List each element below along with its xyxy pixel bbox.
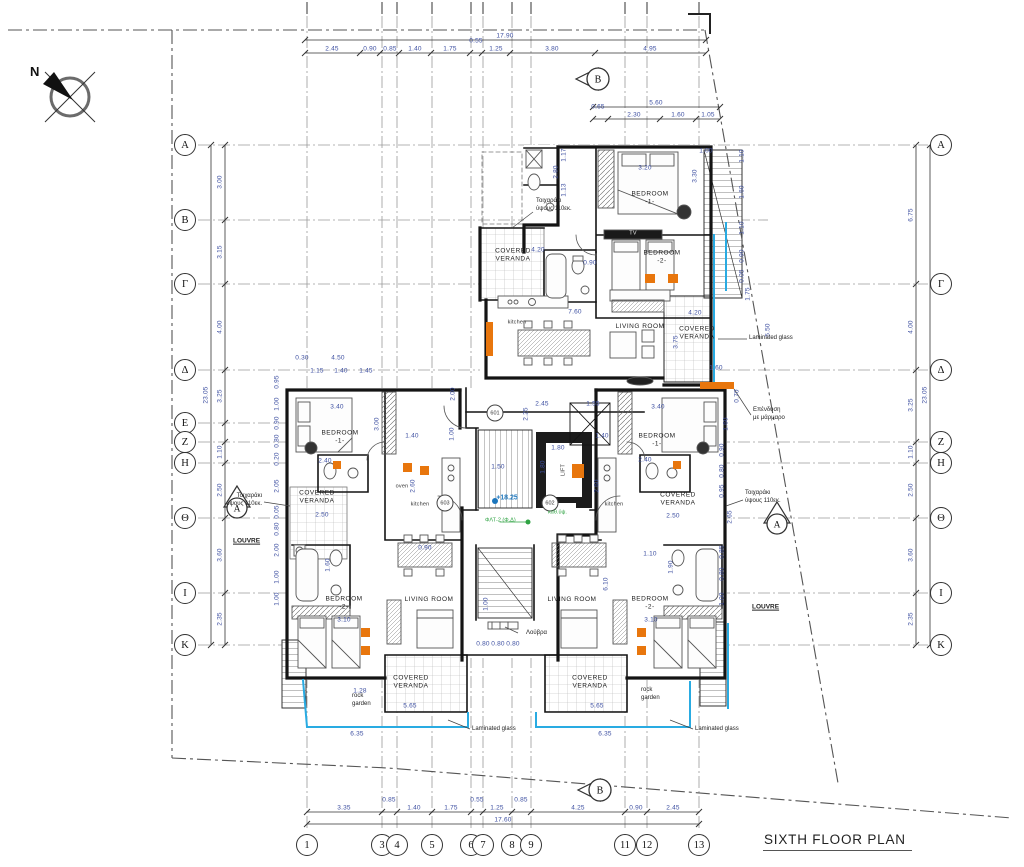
room-label-line: -1- [321, 438, 358, 446]
dim-label: 17.60 [494, 817, 511, 824]
dim-label: 1.40 [405, 433, 418, 440]
dim-label: 0.05 [274, 505, 281, 518]
room-label-line: -2- [325, 604, 362, 612]
dim-label: 0.90 [274, 416, 281, 429]
dim-label: 1.80 [540, 460, 547, 473]
dim-label: 5.60 [649, 100, 662, 107]
dim-label: 23.05 [922, 386, 929, 403]
room-label-bedroom: BEDROOM-2- [325, 596, 362, 613]
dim-label: 0.85 [719, 545, 726, 558]
dim-label: 2.50 [908, 483, 915, 496]
room-label-line: VERANDA [572, 683, 608, 691]
room-label-line: COVERED [572, 675, 608, 683]
room-label-line: BEDROOM [321, 430, 358, 438]
room-label-line: -2- [643, 258, 680, 266]
dim-label: 2.80 [553, 165, 560, 178]
dim-label: 1.10 [643, 551, 656, 558]
dim-label: 6.35 [598, 731, 611, 738]
room-label-line: COVERED [679, 326, 715, 334]
room-label-kitchen: kitchen [605, 501, 624, 508]
dim-label: 17.90 [496, 33, 513, 40]
annotation-line: LOUVRE [752, 604, 779, 613]
dim-label: 1.40 [595, 433, 608, 440]
dim-label: 3.00 [374, 417, 381, 430]
dim-label: 3.15 [217, 245, 224, 258]
room-label-line: -1- [638, 441, 675, 449]
grid-row-label-right-Δ: Δ [930, 359, 952, 381]
annotation-laminated-glass: Laminated glass [695, 725, 739, 733]
room-label-lift: LIFT [560, 464, 567, 476]
annotation-line: Τοιχαράκι [745, 489, 781, 497]
dim-label: 1.60 [709, 365, 722, 372]
dim-label: 2.50 [666, 513, 679, 520]
room-label-line: VERANDA [679, 334, 715, 342]
room-label-line: BEDROOM [643, 250, 680, 258]
dim-label: 3.40 [330, 404, 343, 411]
annotation-line: garden [352, 700, 371, 708]
room-label-line: LIFT [560, 464, 567, 476]
annotation-τοιχαρ-κι: Τοιχαράκιύψους 110εκ. [536, 197, 572, 213]
dim-label: 1.50 [491, 464, 504, 471]
dim-label: 3.60 [217, 548, 224, 561]
dim-label: 3.30 [692, 169, 699, 182]
dim-label: 2.40 [638, 457, 651, 464]
room-label-line: VERANDA [393, 683, 429, 691]
unit-tag-601: 601 [487, 405, 504, 422]
room-label-line: BEDROOM [638, 433, 675, 441]
annotation-line: LOUVRE [233, 538, 260, 547]
dim-label: 0.05 [739, 269, 746, 282]
dim-label: 2.30 [627, 112, 640, 119]
room-label-bedroom: BEDROOM-1- [638, 433, 675, 450]
grid-row-label-right-A: A [930, 134, 952, 156]
room-label-line: COVERED [495, 248, 531, 256]
svg-text:A: A [774, 521, 781, 531]
dim-label: 0.55 [469, 38, 482, 45]
dim-label: 3.10 [337, 617, 350, 624]
dim-label: 2.35 [217, 612, 224, 625]
grid-row-label-right-I: I [930, 582, 952, 604]
north-label: N [30, 64, 39, 79]
dim-label: 1.25 [489, 46, 502, 53]
dim-label: 5.65 [403, 703, 416, 710]
annotation-rock: rockgarden [641, 686, 660, 702]
dim-label: 1.60 [325, 558, 332, 571]
dim-label: 0.95 [274, 375, 281, 388]
room-label-line: LIVING ROOM [616, 323, 665, 331]
room-label-line: BEDROOM [631, 596, 668, 604]
annotation-line: Τοιχαράκι [536, 197, 572, 205]
dim-label: 1.40 [408, 46, 421, 53]
grid-row-label-left-A: A [174, 134, 196, 156]
room-label-covered: COVEREDVERANDA [572, 675, 608, 692]
grid-col-label-1: 1 [296, 834, 318, 856]
plan-title: SIXTH FLOOR PLAN [763, 832, 912, 851]
dim-label: 0.55 [470, 797, 483, 804]
grid-row-label-right-Γ: Γ [930, 273, 952, 295]
annotation-line: με μάρμαρο [753, 414, 785, 422]
dim-label: 0.90 [739, 249, 746, 262]
room-label-line: oven [396, 483, 409, 490]
annotation-line: garden [641, 694, 660, 702]
dim-label: 0.90 [363, 46, 376, 53]
dim-label: 3.00 [217, 175, 224, 188]
dim-label: 1.00 [699, 148, 712, 155]
room-label-line: COVERED [660, 492, 696, 500]
dim-label: 1.55 [586, 401, 599, 408]
dim-label: 3.25 [217, 389, 224, 402]
dim-label: 1.75 [444, 805, 457, 812]
floor-plan-canvas: B B A A AABΓΓΔΔEZZHHΘΘIIKK13456789111213… [0, 0, 1024, 867]
svg-text:B: B [595, 75, 602, 86]
dim-label: 1.10 [739, 221, 746, 234]
dim-label: 1.00 [274, 397, 281, 410]
dim-label: 0.90 [583, 260, 596, 267]
room-label-covered: COVEREDVERANDA [679, 326, 715, 343]
dim-label: 3.80 [545, 46, 558, 53]
dim-label: 1.60 [739, 185, 746, 198]
room-label-covered: COVEREDVERANDA [495, 248, 531, 265]
annotation-rock: rockgarden [352, 692, 371, 708]
dim-label: 4.50 [331, 355, 344, 362]
svg-text:B: B [597, 786, 604, 797]
grid-row-label-right-Z: Z [930, 431, 952, 453]
dim-label: 1.10 [217, 445, 224, 458]
dim-label: 0.65 [591, 104, 604, 111]
room-label-living-room: LIVING ROOM [548, 596, 597, 604]
dim-label: 1.90 [668, 560, 675, 573]
dim-label: 6.10 [603, 577, 610, 590]
dim-label: 4.95 [643, 46, 656, 53]
annotation-laminated-glass: Laminated glass [749, 334, 793, 342]
dim-label: 1.25 [490, 805, 503, 812]
dim-label: 0.80 [274, 522, 281, 535]
dim-label: 0.90 [719, 443, 726, 456]
dim-label: 2.25 [523, 407, 530, 420]
dim-label: 4.20 [688, 310, 701, 317]
dim-label: 1.75 [745, 287, 752, 300]
dim-label: 6.35 [350, 731, 363, 738]
dim-label: 1.00 [449, 427, 456, 440]
grid-col-label-13: 13 [688, 834, 710, 856]
dim-label: 4.00 [908, 320, 915, 333]
grid-row-label-right-Θ: Θ [930, 507, 952, 529]
room-label-line: VERANDA [660, 500, 696, 508]
grid-row-label-left-Γ: Γ [174, 273, 196, 295]
grid-col-label-9: 9 [520, 834, 542, 856]
room-label-tv: TV [629, 230, 636, 237]
dim-label: 2.60 [594, 479, 601, 492]
grid-row-label-left-K: K [174, 634, 196, 656]
annotation-καθ-ψ-: καθ.ύψ. [548, 509, 567, 516]
dim-label: 2.45 [666, 805, 679, 812]
dim-label: 0.80 [506, 641, 519, 648]
room-label-line: COVERED [299, 490, 335, 498]
dim-label: 1.00 [274, 592, 281, 605]
dim-label: 2.60 [410, 479, 417, 492]
dim-label: 1.10 [739, 149, 746, 162]
grid-row-label-left-Δ: Δ [174, 359, 196, 381]
grid-row-label-left-I: I [174, 582, 196, 604]
level-marker: +18.25 [496, 495, 518, 502]
annotation-line: Τοιχαράκι [226, 492, 262, 500]
dim-label: 2.05 [274, 479, 281, 492]
annotation-line: Laminated glass [695, 725, 739, 733]
grid-col-label-12: 12 [636, 834, 658, 856]
dim-label: 0.90 [418, 545, 431, 552]
north-arrow-icon [43, 72, 95, 122]
dim-label: 1.80 [551, 445, 564, 452]
annotation-line: ύψους 110εκ. [536, 205, 572, 213]
grid-row-label-right-K: K [930, 634, 952, 656]
annotation-line: ΦΛΤ-2 (Φ.Δ) [485, 517, 516, 524]
room-label-line: LIVING ROOM [405, 596, 454, 604]
dim-label: 2.00 [274, 543, 281, 556]
grid-col-label-5: 5 [421, 834, 443, 856]
dim-label: 7.60 [568, 309, 581, 316]
dim-label: 2.65 [727, 510, 734, 523]
dim-label: 2.50 [315, 512, 328, 519]
room-label-line: BEDROOM [631, 191, 668, 199]
annotation-line: rock [641, 686, 660, 694]
dim-label: 3.25 [908, 398, 915, 411]
dim-label: 3.20 [638, 165, 651, 172]
dim-label: 0.80 [719, 464, 726, 477]
dim-label: 0.90 [629, 805, 642, 812]
dim-label: 1.05 [701, 112, 714, 119]
room-label-covered: COVEREDVERANDA [393, 675, 429, 692]
annotation-line: ύψους 110εκ. [745, 497, 781, 505]
dim-label: 3.60 [908, 548, 915, 561]
dim-label: 0.85 [382, 797, 395, 804]
dim-label: 4.00 [217, 320, 224, 333]
dim-label: 0.70 [734, 389, 741, 402]
dim-label: 2.35 [908, 612, 915, 625]
annotation-line: ύψους 110εκ. [226, 500, 262, 508]
room-label-living-room: LIVING ROOM [405, 596, 454, 604]
dim-label: 1.60 [671, 112, 684, 119]
dim-label: 0.85 [514, 797, 527, 804]
dim-label: 0.30 [295, 355, 308, 362]
dim-label: 1.75 [443, 46, 456, 53]
annotation-laminated-glass: Laminated glass [472, 725, 516, 733]
dim-label: 0.80 [274, 434, 281, 447]
annotation-λο-βρα: Λούβρα [526, 629, 547, 637]
annotation-line: rock [352, 692, 371, 700]
room-label-line: TV [629, 230, 636, 237]
room-label-bedroom: BEDROOM-2- [631, 596, 668, 613]
annotation-line: καθ.ύψ. [548, 509, 567, 516]
dim-label: 2.00 [450, 387, 457, 400]
room-label-bedroom: BEDROOM-1- [631, 191, 668, 208]
room-label-line: -1- [631, 199, 668, 207]
dim-label: 1.40 [334, 368, 347, 375]
dim-label: 1.15 [310, 368, 323, 375]
grid-col-label-7: 7 [472, 834, 494, 856]
room-label-line: VERANDA [299, 498, 335, 506]
floor-plan-drawing: B B A A [0, 0, 1024, 867]
dim-label: 1.13 [561, 183, 568, 196]
dim-label: 0.80 [476, 641, 489, 648]
room-label-line: BEDROOM [325, 596, 362, 604]
grid-col-label-4: 4 [386, 834, 408, 856]
room-label-bedroom: BEDROOM-1- [321, 430, 358, 447]
dim-label: 2.45 [325, 46, 338, 53]
dim-label: 1.00 [719, 592, 726, 605]
room-label-covered: COVEREDVERANDA [660, 492, 696, 509]
unit-tag-603: 603 [437, 495, 454, 512]
annotation-line: Λούβρα [526, 629, 547, 637]
annotation-τοιχαρ-κι: Τοιχαράκιύψους 110εκ. [226, 492, 262, 508]
annotation-line: Laminated glass [749, 334, 793, 342]
dim-label: 1.60 [723, 417, 730, 430]
room-label-kitchen: kitchen [508, 319, 527, 326]
room-label-line: kitchen [411, 501, 430, 508]
annotation-φλτ-2-φ-δ-: ΦΛΤ-2 (Φ.Δ) [485, 517, 516, 524]
room-label-line: LIVING ROOM [548, 596, 597, 604]
grid-row-label-right-H: H [930, 452, 952, 474]
grid-row-label-left-Z: Z [174, 431, 196, 453]
room-label-oven: oven [396, 483, 409, 490]
dim-label: 1.00 [483, 597, 490, 610]
dim-label: 4.20 [531, 247, 544, 254]
dim-label: 1.45 [359, 368, 372, 375]
room-label-line: VERANDA [495, 256, 531, 264]
room-label-kitchen: kitchen [411, 501, 430, 508]
dim-label: 2.50 [217, 483, 224, 496]
room-label-bedroom: BEDROOM-2- [643, 250, 680, 267]
room-label-line: kitchen [508, 319, 527, 326]
dim-label: 0.95 [719, 484, 726, 497]
dim-label: 3.35 [337, 805, 350, 812]
dim-label: 0.80 [491, 641, 504, 648]
annotation-επ-νδυση: Επένδυσημε μάρμαρο [753, 406, 785, 422]
dim-label: 5.65 [590, 703, 603, 710]
dim-label: 6.75 [908, 208, 915, 221]
dim-label: 1.17 [561, 148, 568, 161]
dim-label: 0.80 [719, 567, 726, 580]
dashed-terrace-outline [482, 152, 522, 224]
room-label-line: kitchen [605, 501, 624, 508]
dim-label: 1.10 [908, 445, 915, 458]
room-label-covered: COVEREDVERANDA [299, 490, 335, 507]
dim-label: 3.10 [644, 617, 657, 624]
dim-label: 0.20 [274, 452, 281, 465]
grid-row-label-left-H: H [174, 452, 196, 474]
annotation-τοιχαρ-κι: Τοιχαράκιύψους 110εκ. [745, 489, 781, 505]
annotation-line: Επένδυση [753, 406, 785, 414]
room-label-living-room: LIVING ROOM [616, 323, 665, 331]
dim-label: 2.40 [318, 458, 331, 465]
dim-label: 1.40 [407, 805, 420, 812]
room-label-line: -2- [631, 604, 668, 612]
dim-label: 4.25 [571, 805, 584, 812]
grid-row-label-left-B: B [174, 209, 196, 231]
room-label-line: COVERED [393, 675, 429, 683]
dim-label: 0.85 [383, 46, 396, 53]
dim-label: 23.05 [203, 386, 210, 403]
annotation-louvre: LOUVRE [752, 604, 779, 613]
annotation-louvre: LOUVRE [233, 538, 260, 547]
grid-row-label-left-Θ: Θ [174, 507, 196, 529]
dim-label: 2.45 [535, 401, 548, 408]
grid-col-label-11: 11 [614, 834, 636, 856]
dim-label: 1.00 [274, 570, 281, 583]
dim-label: 3.40 [651, 404, 664, 411]
annotation-line: Laminated glass [472, 725, 516, 733]
